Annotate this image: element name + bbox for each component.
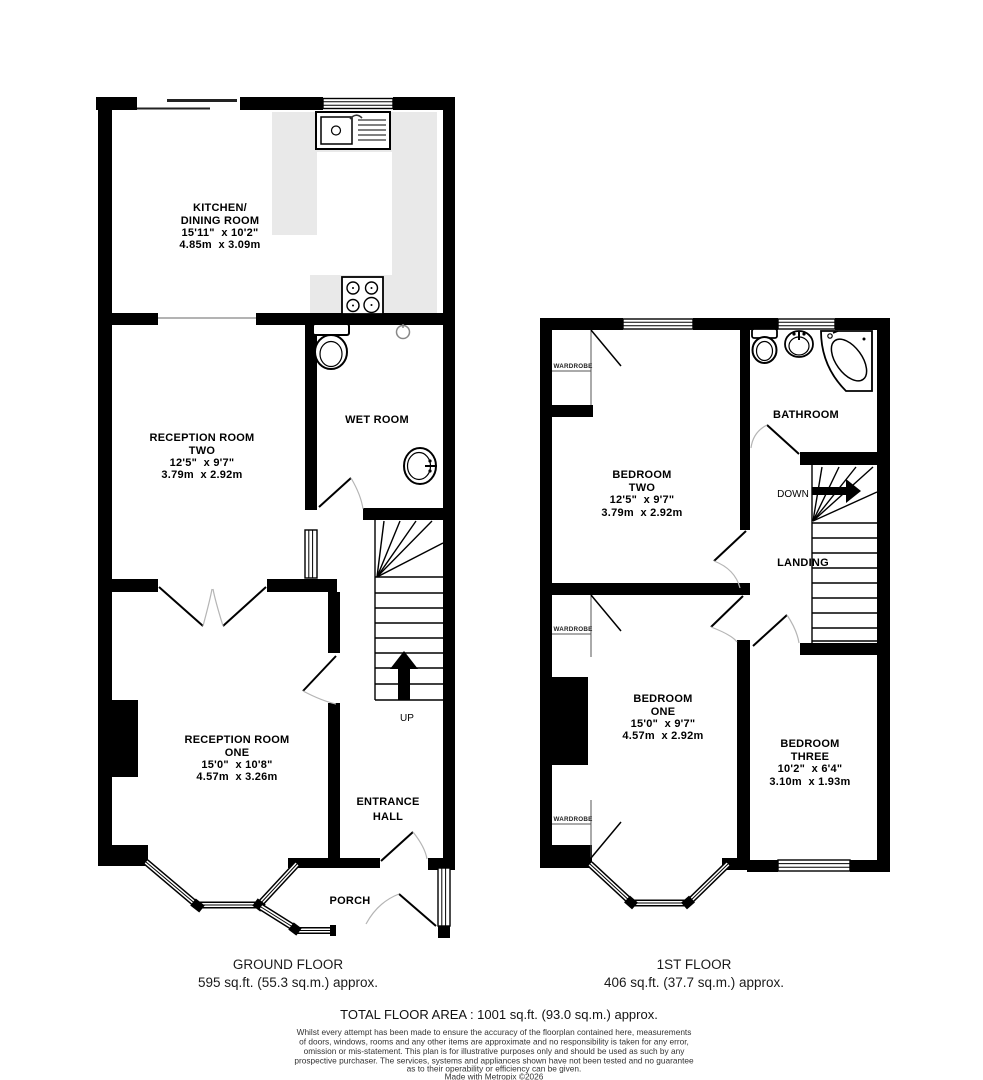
svg-text:ONE: ONE bbox=[651, 706, 676, 718]
stairs-up bbox=[375, 515, 443, 700]
wardrobe-label: WARDROBE bbox=[553, 363, 592, 370]
shower-drain-icon bbox=[397, 324, 410, 339]
reception-one-door bbox=[303, 656, 336, 691]
chimney-breast bbox=[112, 700, 138, 777]
corner-bath-icon bbox=[821, 331, 874, 391]
credit-line: Made with Metropix ©2026 bbox=[445, 1072, 544, 1080]
svg-text:10'2" x 6'4": 10'2" x 6'4" bbox=[778, 763, 843, 775]
reception-one-label: RECEPTION ROOM bbox=[185, 734, 290, 746]
svg-text:3.10m x 1.93m: 3.10m x 1.93m bbox=[769, 776, 850, 788]
bedroom-one-bay-window bbox=[590, 864, 728, 906]
first-floor-caption: 1ST FLOOR bbox=[657, 957, 732, 972]
entrance-hall-label: ENTRANCE bbox=[356, 796, 419, 808]
up-arrow-icon bbox=[390, 651, 418, 700]
bedroom-two-door bbox=[714, 531, 746, 561]
bedroom-three-window bbox=[778, 860, 850, 871]
bathroom-basin-icon bbox=[785, 331, 813, 357]
kitchen-label: KITCHEN/ bbox=[193, 202, 247, 214]
first-floor-area: 406 sq.ft. (37.7 sq.m.) approx. bbox=[604, 975, 784, 990]
porch-door bbox=[399, 894, 436, 926]
disclaimer-line: omission or mis-statement. This plan is … bbox=[304, 1046, 686, 1056]
wet-room-door bbox=[319, 478, 351, 507]
svg-text:15'11" x 10'2": 15'11" x 10'2" bbox=[182, 227, 259, 239]
wetroom-basin-icon bbox=[404, 448, 437, 484]
bedroom-two-label: BEDROOM bbox=[612, 469, 671, 481]
porch-label: PORCH bbox=[330, 895, 371, 907]
bathroom-window bbox=[778, 319, 835, 329]
porch-side-window bbox=[438, 868, 450, 926]
ground-floor-area: 595 sq.ft. (55.3 sq.m.) approx. bbox=[198, 975, 378, 990]
ground-floor-caption: GROUND FLOOR bbox=[233, 957, 344, 972]
captions: GROUND FLOOR 595 sq.ft. (55.3 sq.m.) app… bbox=[198, 957, 784, 990]
first-walls bbox=[540, 318, 890, 872]
svg-text:4.57m x 3.26m: 4.57m x 3.26m bbox=[196, 771, 277, 783]
floorplan-drawing: KITCHEN/ DINING ROOM 15'11" x 10'2" 4.85… bbox=[0, 0, 983, 1080]
bedroom-three-label: BEDROOM bbox=[780, 738, 839, 750]
double-door-left bbox=[159, 587, 203, 626]
total-floor-area: TOTAL FLOOR AREA : 1001 sq.ft. (93.0 sq.… bbox=[340, 1007, 658, 1022]
wet-room-label: WET ROOM bbox=[345, 414, 409, 426]
svg-text:TWO: TWO bbox=[189, 445, 216, 457]
floorplan-page: KITCHEN/ DINING ROOM 15'11" x 10'2" 4.85… bbox=[0, 0, 983, 1080]
svg-text:4.57m x 2.92m: 4.57m x 2.92m bbox=[622, 730, 703, 742]
svg-text:THREE: THREE bbox=[791, 751, 830, 763]
svg-text:ONE: ONE bbox=[225, 747, 250, 759]
kitchen-window bbox=[323, 99, 393, 109]
porch-window bbox=[261, 907, 336, 936]
first-floor-plan: BEDROOM TWO 12'5" x 9'7" 3.79m x 2.92m B… bbox=[540, 318, 890, 906]
up-label: UP bbox=[400, 713, 414, 724]
svg-text:3.79m x 2.92m: 3.79m x 2.92m bbox=[161, 469, 242, 481]
svg-text:DINING ROOM: DINING ROOM bbox=[181, 215, 260, 227]
wetroom-toilet-icon bbox=[313, 324, 349, 369]
bathroom-toilet-icon bbox=[752, 329, 777, 363]
landing-label: LANDING bbox=[777, 557, 829, 569]
bathroom-door bbox=[767, 425, 799, 454]
svg-text:3.79m x 2.92m: 3.79m x 2.92m bbox=[601, 507, 682, 519]
hob-icon bbox=[342, 277, 383, 314]
chimney-breast bbox=[552, 677, 588, 765]
svg-text:TWO: TWO bbox=[629, 482, 656, 494]
bedroom-three-door bbox=[753, 615, 787, 646]
wardrobe-label: WARDROBE bbox=[553, 816, 592, 823]
disclaimer-line: Whilst every attempt has been made to en… bbox=[297, 1027, 692, 1037]
svg-text:12'5" x 9'7": 12'5" x 9'7" bbox=[610, 494, 675, 506]
bedroom-two-window bbox=[623, 319, 693, 329]
svg-text:4.85m x 3.09m: 4.85m x 3.09m bbox=[179, 239, 260, 251]
svg-text:12'5" x 9'7": 12'5" x 9'7" bbox=[170, 457, 235, 469]
footer: TOTAL FLOOR AREA : 1001 sq.ft. (93.0 sq.… bbox=[294, 1007, 694, 1080]
disclaimer-line: of doors, windows, rooms and any other i… bbox=[299, 1037, 689, 1047]
stairs-down bbox=[812, 465, 877, 643]
svg-text:15'0" x 10'8": 15'0" x 10'8" bbox=[201, 759, 272, 771]
svg-text:HALL: HALL bbox=[373, 811, 403, 823]
wardrobe-label: WARDROBE bbox=[553, 626, 592, 633]
kitchen-sink-icon bbox=[316, 112, 390, 149]
internal-window bbox=[305, 530, 317, 578]
bedroom-one-door bbox=[711, 596, 743, 627]
reception-two-label: RECEPTION ROOM bbox=[150, 432, 255, 444]
ground-floor-plan: KITCHEN/ DINING ROOM 15'11" x 10'2" 4.85… bbox=[96, 97, 455, 938]
double-door-right bbox=[223, 587, 266, 626]
svg-text:15'0" x 9'7": 15'0" x 9'7" bbox=[631, 718, 696, 730]
front-door bbox=[381, 832, 413, 861]
first-doors bbox=[711, 425, 799, 646]
bedroom-one-label: BEDROOM bbox=[633, 693, 692, 705]
down-label: DOWN bbox=[777, 489, 809, 500]
bathroom-label: BATHROOM bbox=[773, 409, 839, 421]
bay-window bbox=[146, 862, 297, 909]
